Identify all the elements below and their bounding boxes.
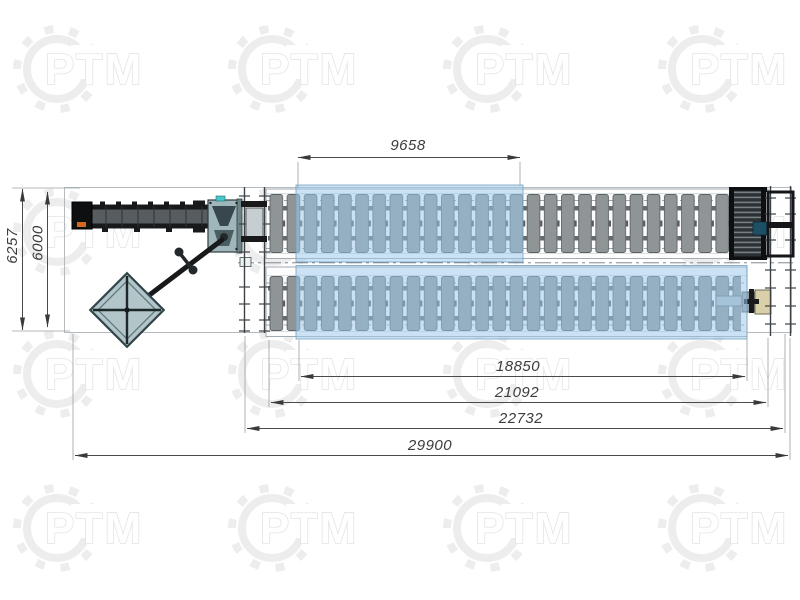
highlight-zone-top (296, 185, 523, 262)
hopper (90, 273, 164, 347)
dim-label-29900: 29900 (407, 437, 452, 454)
drawing-svg: РТМ (0, 0, 800, 600)
dim-label-6257: 6257 (4, 228, 21, 264)
infeed-conveyor (72, 201, 218, 233)
highlight-zone-bottom (296, 266, 747, 340)
technical-drawing: РТМ (0, 0, 800, 600)
cyan-sensor-chip (216, 196, 225, 201)
drive-motor (753, 222, 767, 235)
dim-label-22732: 22732 (498, 410, 543, 427)
dim-label-6000: 6000 (30, 225, 47, 261)
drive-label-chip (77, 222, 86, 227)
dim-label-18850: 18850 (496, 358, 540, 375)
dim-label-21092: 21092 (494, 384, 539, 401)
top-conveyor-drive (729, 187, 767, 260)
dim-label-top: 9658 (390, 137, 426, 154)
